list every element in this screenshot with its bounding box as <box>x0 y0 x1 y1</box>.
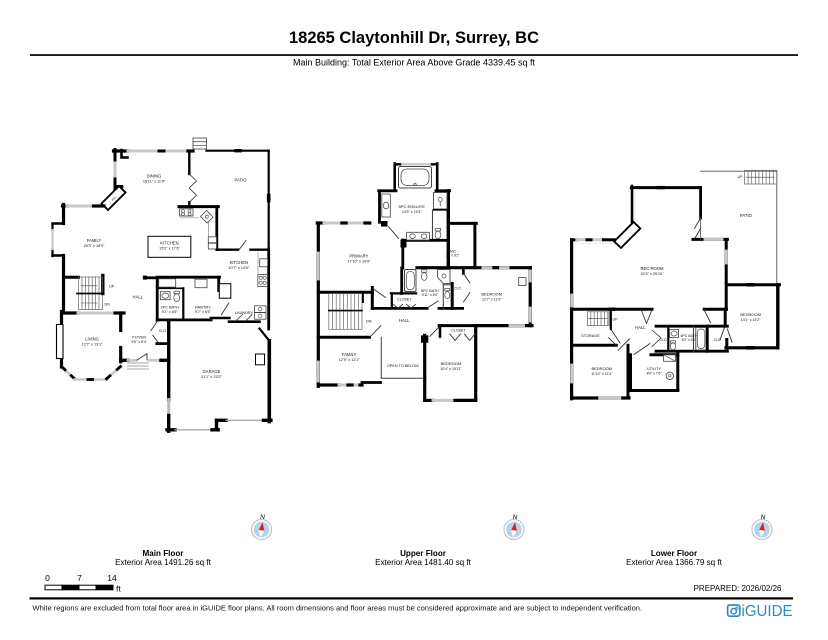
svg-text:DN: DN <box>366 320 372 324</box>
svg-text:N: N <box>260 514 265 521</box>
svg-text:18265 Claytonhill Dr, Surrey,: 18265 Claytonhill Dr, Surrey, BC <box>289 29 539 47</box>
svg-text:BEDROOM: BEDROOM <box>591 366 612 371</box>
svg-text:20'3" x 18'9": 20'3" x 18'9" <box>84 244 105 248</box>
svg-text:HALL: HALL <box>399 318 410 323</box>
svg-text:iGUIDE: iGUIDE <box>742 603 793 620</box>
svg-text:21'1" x 23'2": 21'1" x 23'2" <box>201 375 222 379</box>
svg-text:REC ROOM: REC ROOM <box>640 266 664 271</box>
svg-text:ft: ft <box>116 584 121 594</box>
svg-text:GARAGE: GARAGE <box>203 369 221 374</box>
svg-text:BEDROOM: BEDROOM <box>481 292 502 297</box>
svg-text:9'5" x 8'4": 9'5" x 8'4" <box>131 340 147 344</box>
svg-text:8'2" x 5'1": 8'2" x 5'1" <box>682 338 697 342</box>
svg-text:Main Floor: Main Floor <box>143 549 185 558</box>
svg-text:UP: UP <box>109 285 115 289</box>
svg-text:CLO: CLO <box>660 338 667 342</box>
svg-text:HALL: HALL <box>635 325 646 330</box>
svg-text:10'7" x 14'6": 10'7" x 14'6" <box>228 266 249 270</box>
svg-text:14'1" x 14'2": 14'1" x 14'2" <box>741 318 761 322</box>
svg-text:DINING: DINING <box>147 174 162 179</box>
svg-text:PANTRY: PANTRY <box>195 305 211 310</box>
svg-text:0: 0 <box>45 573 50 583</box>
svg-text:PRIMARY: PRIMARY <box>349 254 368 259</box>
svg-text:12'9" x 12'1": 12'9" x 12'1" <box>339 358 360 362</box>
svg-text:FAMILY: FAMILY <box>342 352 357 357</box>
svg-text:11'10" x 11'4": 11'10" x 11'4" <box>591 372 613 376</box>
svg-text:LIVING: LIVING <box>85 337 99 342</box>
svg-text:14: 14 <box>107 573 117 583</box>
svg-text:PREPARED: 2026/02/26: PREPARED: 2026/02/26 <box>694 584 782 593</box>
svg-text:FOYER: FOYER <box>132 335 146 340</box>
svg-text:CLO: CLO <box>159 329 166 333</box>
svg-text:N: N <box>761 514 766 521</box>
svg-text:UP: UP <box>738 175 744 179</box>
svg-text:UP: UP <box>613 318 619 322</box>
svg-text:CLO: CLO <box>714 338 721 342</box>
svg-text:KITCHEN: KITCHEN <box>160 241 178 246</box>
svg-text:DN: DN <box>105 303 111 307</box>
svg-text:9'11" x 8'4": 9'11" x 8'4" <box>422 293 439 297</box>
svg-text:Main Building: Total Exterior: Main Building: Total Exterior Area Above… <box>293 58 535 68</box>
svg-text:KITCHEN: KITCHEN <box>230 260 248 265</box>
svg-text:12'7" x 13'1": 12'7" x 13'1" <box>82 343 103 347</box>
svg-text:PATIO: PATIO <box>235 178 248 183</box>
svg-text:15'2" x 17'6": 15'2" x 17'6" <box>159 247 180 251</box>
svg-text:Exterior Area 1481.40 sq ft: Exterior Area 1481.40 sq ft <box>375 558 472 567</box>
svg-text:Exterior Area 1491.26 sq ft: Exterior Area 1491.26 sq ft <box>115 558 212 567</box>
svg-text:32'4" x 25'10": 32'4" x 25'10" <box>641 272 665 276</box>
svg-text:BEDROOM: BEDROOM <box>740 312 761 317</box>
svg-text:5'1" x 6'5": 5'1" x 6'5" <box>162 310 178 314</box>
svg-text:HALL: HALL <box>133 295 144 300</box>
svg-text:Exterior Area 1366.79 sq ft: Exterior Area 1366.79 sq ft <box>626 558 723 567</box>
svg-text:White regions are excluded fro: White regions are excluded from total fl… <box>33 604 643 613</box>
svg-text:10' x 9'1": 10' x 9'1" <box>446 254 461 258</box>
svg-text:17'10" x 14'9": 17'10" x 14'9" <box>347 260 371 264</box>
svg-text:OPEN TO BELOW: OPEN TO BELOW <box>387 364 419 368</box>
svg-text:14'3" x 15'3": 14'3" x 15'3" <box>402 210 422 214</box>
svg-text:N: N <box>513 514 518 521</box>
svg-text:8'4" x 7'6": 8'4" x 7'6" <box>647 372 663 376</box>
svg-text:UTILITY: UTILITY <box>647 367 662 371</box>
svg-text:9'7" x 6'5": 9'7" x 6'5" <box>195 310 211 314</box>
svg-text:BEDROOM: BEDROOM <box>441 361 462 366</box>
svg-text:FAMILY: FAMILY <box>87 238 102 243</box>
svg-text:Upper Floor: Upper Floor <box>400 549 447 558</box>
svg-text:15'11" x 11'9": 15'11" x 11'9" <box>143 180 166 184</box>
svg-text:12'7" x 11'9": 12'7" x 11'9" <box>482 297 502 301</box>
svg-text:PATIO: PATIO <box>740 213 753 218</box>
svg-text:CLO: CLO <box>454 287 461 291</box>
svg-text:STORAGE: STORAGE <box>581 334 600 338</box>
svg-text:LAUNDRY: LAUNDRY <box>235 311 254 315</box>
svg-text:7: 7 <box>77 573 82 583</box>
svg-text:CLOSET: CLOSET <box>397 298 412 302</box>
svg-text:10'4" x 15'11": 10'4" x 15'11" <box>440 367 462 371</box>
svg-text:Lower Floor: Lower Floor <box>651 549 698 558</box>
svg-text:5PC ENSUITE: 5PC ENSUITE <box>399 204 426 209</box>
svg-text:CLOSET: CLOSET <box>451 329 466 333</box>
